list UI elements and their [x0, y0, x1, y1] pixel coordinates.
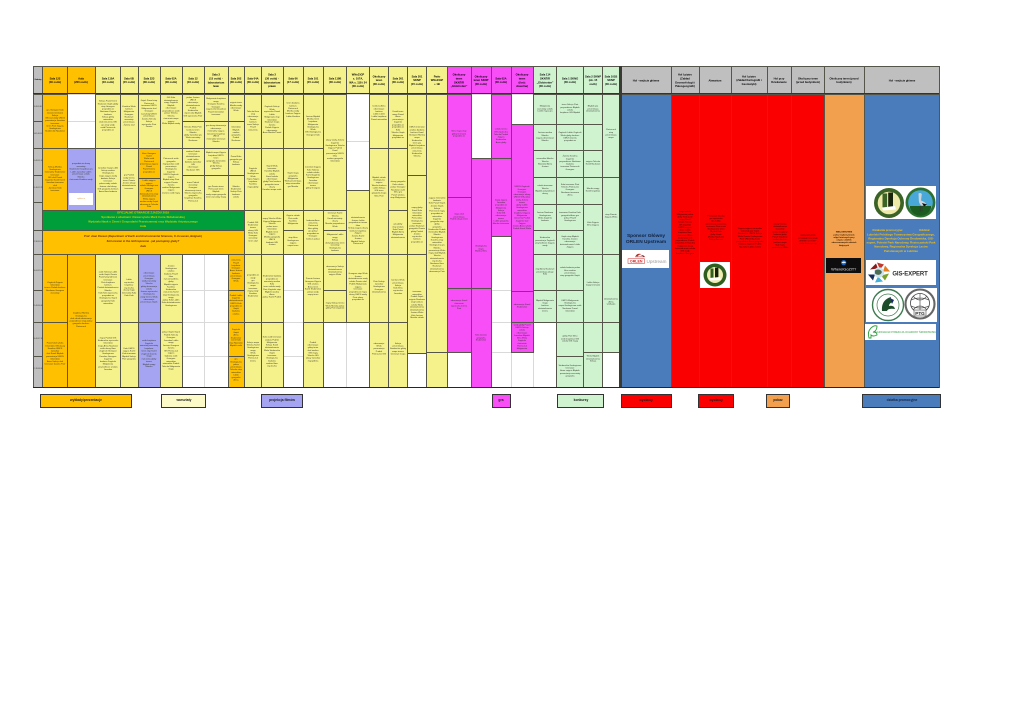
svg-text:GIS-EXPERT: GIS-EXPERT — [892, 271, 928, 277]
svg-text:ORLEN: ORLEN — [630, 260, 643, 264]
svg-text:WhereIGoZIT?: WhereIGoZIT? — [831, 267, 856, 271]
svg-text:Upstream: Upstream — [647, 259, 667, 264]
svg-text:PTG: PTG — [915, 311, 925, 316]
svg-text:REGIONALNA DYREKCJA OCHRONY ŚR: REGIONALNA DYREKCJA OCHRONY ŚRODOWISKA — [873, 329, 935, 334]
